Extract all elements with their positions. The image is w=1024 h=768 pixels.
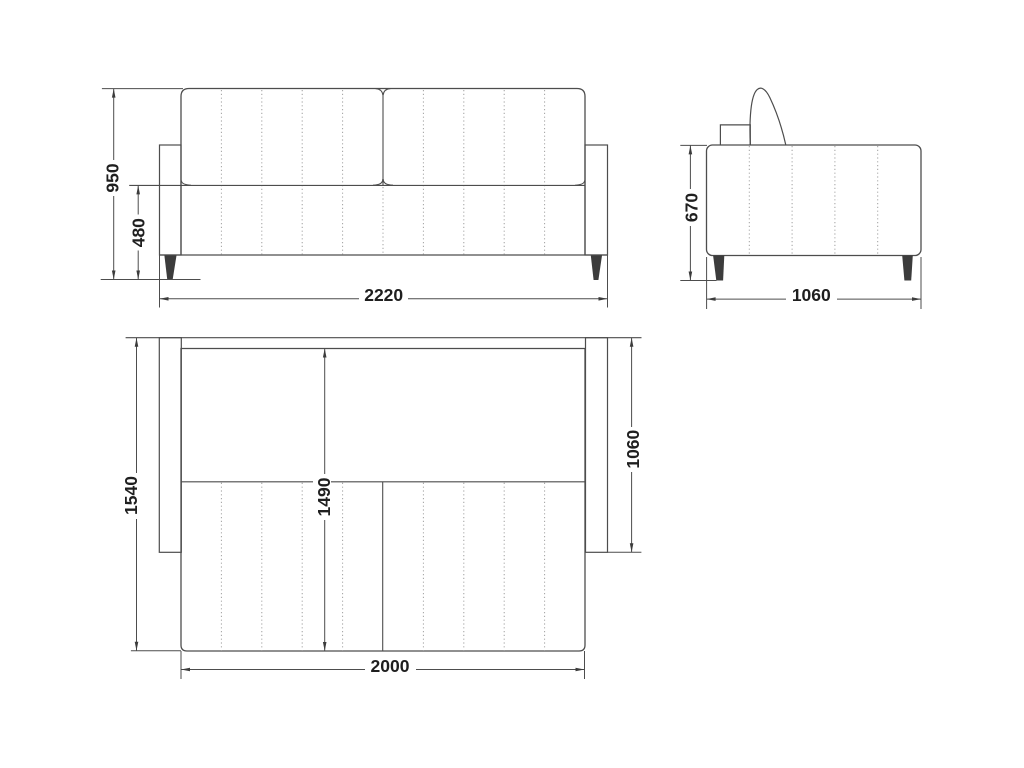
svg-text:1490: 1490 xyxy=(314,477,334,516)
svg-text:1060: 1060 xyxy=(792,285,831,305)
svg-text:2220: 2220 xyxy=(364,285,403,305)
svg-text:2000: 2000 xyxy=(371,656,410,676)
svg-text:1060: 1060 xyxy=(623,429,643,468)
svg-text:1540: 1540 xyxy=(121,476,141,515)
svg-text:950: 950 xyxy=(103,163,123,192)
svg-text:670: 670 xyxy=(682,193,702,222)
svg-text:480: 480 xyxy=(129,218,149,247)
